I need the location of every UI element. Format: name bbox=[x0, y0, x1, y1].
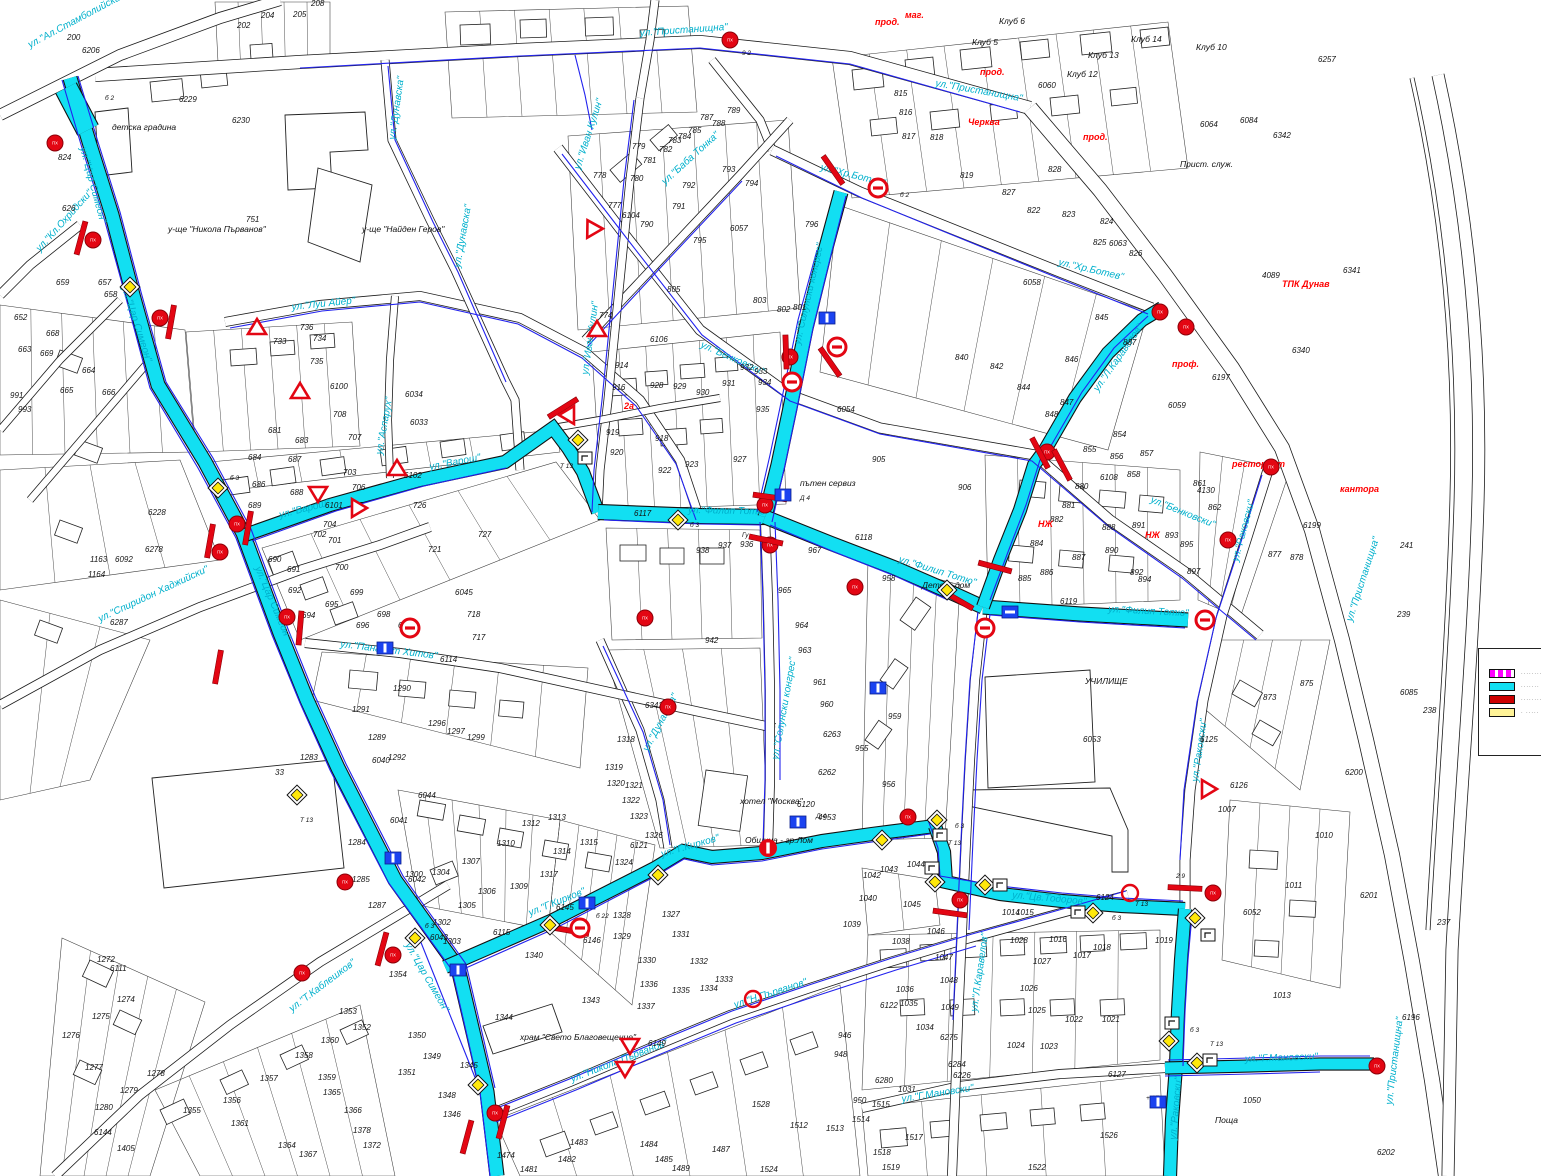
parcel-number: 1361 bbox=[231, 1119, 249, 1128]
parcel-number: 6054 bbox=[837, 405, 855, 414]
parcel-number: 858 bbox=[1127, 470, 1141, 479]
parcel-number: 6340 bbox=[1292, 346, 1310, 355]
parcel-number: 931 bbox=[722, 379, 735, 388]
parcel-number: 1164 bbox=[88, 570, 106, 579]
parcel-number: 848 bbox=[1045, 410, 1059, 419]
network-street bbox=[66, 88, 88, 130]
parcel-number: 1274 bbox=[117, 995, 135, 1004]
parcel-number: 785 bbox=[688, 126, 702, 135]
parcel-number: 1040 bbox=[859, 894, 877, 903]
parcel-number: 1356 bbox=[223, 1096, 241, 1105]
parcel-number: 1027 bbox=[1033, 957, 1051, 966]
parcel-number: 893 bbox=[1165, 531, 1179, 540]
svg-text:ПХ: ПХ bbox=[852, 585, 858, 590]
parcel-number: 932 bbox=[740, 363, 754, 372]
parcel-number: 6044 bbox=[418, 791, 436, 800]
valve-bar-icon bbox=[375, 932, 389, 966]
parcel-number: 1289 bbox=[368, 733, 386, 742]
parcel-number: 6228 bbox=[148, 508, 166, 517]
parcel-number: 1319 bbox=[605, 763, 623, 772]
parcel-line bbox=[507, 476, 550, 540]
place-label: Клуб 6 bbox=[999, 16, 1025, 26]
parcel-number: 1313 bbox=[548, 813, 566, 822]
road-fill bbox=[55, 885, 448, 1176]
parcel-number: 1364 bbox=[278, 1141, 296, 1150]
building bbox=[1080, 1103, 1105, 1121]
building bbox=[1289, 900, 1316, 917]
place-label: Клуб 5 bbox=[972, 37, 998, 47]
parcel-number: 1353 bbox=[339, 1007, 357, 1016]
parcel-number: 934 bbox=[758, 378, 772, 387]
parcel-number: 706 bbox=[352, 483, 366, 492]
building bbox=[590, 1112, 618, 1135]
parcel-number: 6206 bbox=[82, 46, 100, 55]
parcel-number: 202 bbox=[236, 21, 251, 30]
parcel-number: 1292 bbox=[388, 753, 406, 762]
parcel-number: 906 bbox=[958, 483, 972, 492]
parcel-number: 1348 bbox=[438, 1091, 456, 1100]
parcel-block bbox=[0, 600, 150, 800]
parcel-number: 1355 bbox=[183, 1106, 201, 1115]
parcel-line bbox=[458, 491, 500, 560]
parcel-number: 827 bbox=[1002, 188, 1016, 197]
hydrant-icon: ПХ bbox=[1152, 304, 1168, 320]
parcel-number: 1324 bbox=[615, 858, 633, 867]
chamber-icon bbox=[1071, 906, 1085, 918]
parcel-number: 683 bbox=[295, 436, 309, 445]
parcel-number: 1513 bbox=[826, 1124, 844, 1133]
svg-text:ПХ: ПХ bbox=[727, 38, 733, 43]
building bbox=[930, 109, 960, 130]
valve-bar-icon bbox=[296, 611, 304, 645]
parcel-number: 1277 bbox=[85, 1063, 103, 1072]
parcel-number: 1035 bbox=[900, 999, 918, 1008]
parcel-number: 825 bbox=[1093, 238, 1107, 247]
parcel-line bbox=[1275, 640, 1301, 769]
parcel-number: 935 bbox=[756, 405, 770, 414]
parcel-number: 1378 bbox=[353, 1126, 371, 1135]
parcel-number: 946 bbox=[838, 1031, 852, 1040]
no-entry-icon bbox=[976, 619, 994, 637]
valve-bar-icon bbox=[212, 650, 223, 684]
parcel-number: 1517 bbox=[905, 1133, 923, 1142]
note-label: Т 13 bbox=[560, 463, 573, 470]
parcel-number: 699 bbox=[350, 588, 364, 597]
note-label: б 3 bbox=[690, 521, 699, 529]
building bbox=[1110, 87, 1138, 106]
hydrant-icon: ПХ bbox=[229, 516, 245, 532]
building bbox=[230, 348, 257, 366]
parcel-number: 1036 bbox=[896, 985, 914, 994]
parcel-number: 1343 bbox=[582, 996, 600, 1005]
parcel-number: 933 bbox=[754, 367, 768, 376]
parcel-number: 6104 bbox=[622, 211, 640, 220]
parcel-line bbox=[673, 343, 681, 507]
parcel-number: 1317 bbox=[540, 870, 558, 879]
parcel-number: 965 bbox=[778, 586, 792, 595]
building bbox=[55, 520, 83, 543]
parcel-line bbox=[491, 663, 500, 746]
building bbox=[1232, 680, 1263, 707]
legend-label: · ····· bbox=[1521, 710, 1539, 716]
note-label: б 3 bbox=[955, 822, 964, 830]
place-label: Поща bbox=[1215, 1115, 1238, 1125]
place-label: Клуб 13 bbox=[1088, 50, 1119, 60]
parcel-number: 689 bbox=[248, 501, 262, 510]
parcel-number: 888 bbox=[1102, 523, 1116, 532]
place-label: у-ще "Никола Първанов" bbox=[167, 224, 267, 234]
parcel-number: 822 bbox=[1027, 206, 1041, 215]
parcel-number: 796 bbox=[805, 220, 819, 229]
parcel-number: 6196 bbox=[1402, 1013, 1420, 1022]
parcel-number: 1512 bbox=[790, 1121, 808, 1130]
parcel-line bbox=[360, 519, 400, 600]
parcel-number: 1272 bbox=[97, 955, 115, 964]
parcel-number: 669 bbox=[40, 349, 54, 358]
parcel-number: 1278 bbox=[147, 1069, 165, 1078]
hydrant-flag-icon bbox=[450, 964, 466, 976]
parcel-number: 664 bbox=[82, 366, 96, 375]
poi-label: кантора bbox=[1340, 484, 1379, 494]
building-outline bbox=[152, 760, 344, 888]
building bbox=[618, 418, 643, 436]
building bbox=[520, 19, 547, 38]
parcel-number: 862 bbox=[1208, 503, 1222, 512]
parcel-line bbox=[93, 318, 98, 454]
parcel-line bbox=[868, 223, 890, 385]
parcel-number: 1310 bbox=[497, 839, 515, 848]
parcel-number: 1017 bbox=[1073, 951, 1091, 960]
parcel-line bbox=[725, 1030, 747, 1176]
parcel-number: 665 bbox=[60, 386, 74, 395]
parcel-number: 681 bbox=[268, 426, 281, 435]
hydrant-flag-icon bbox=[819, 312, 835, 324]
parcel-number: 895 bbox=[1180, 540, 1194, 549]
parcel-line bbox=[753, 335, 760, 505]
road-casing bbox=[55, 885, 448, 1176]
street-label: ул."Пристанищна" bbox=[1344, 535, 1382, 624]
parcel-number: 6045 bbox=[455, 588, 473, 597]
note-label: б 3 bbox=[230, 474, 239, 482]
parcel-number: 1330 bbox=[638, 956, 656, 965]
hydrant-icon: ПХ bbox=[900, 809, 916, 825]
parcel-number: 818 bbox=[930, 133, 944, 142]
parcel-number: 1045 bbox=[903, 900, 921, 909]
road-fill bbox=[30, 360, 150, 500]
note-label: 2 9 bbox=[1175, 873, 1185, 880]
parcel-number: 200 bbox=[66, 33, 81, 42]
warning-triangle-icon bbox=[580, 216, 603, 238]
hydrant-flag-icon bbox=[870, 682, 886, 694]
svg-text:ПХ: ПХ bbox=[642, 616, 648, 621]
parcel-number: 1346 bbox=[443, 1110, 461, 1119]
chamber-icon bbox=[1165, 1017, 1179, 1029]
no-entry-icon bbox=[828, 338, 846, 356]
parcel-number: 657 bbox=[98, 278, 112, 287]
parcel-number: 789 bbox=[727, 106, 741, 115]
parcel-number: 6126 bbox=[1230, 781, 1248, 790]
parcel-number: 6064 bbox=[1200, 120, 1218, 129]
legend-note: · · bbox=[1489, 657, 1541, 663]
parcel-number: 659 bbox=[56, 278, 70, 287]
poi-label: 2а bbox=[623, 401, 634, 411]
legend-swatch bbox=[1489, 669, 1515, 678]
parcel-number: 1306 bbox=[478, 887, 496, 896]
parcel-number: 823 bbox=[1062, 210, 1076, 219]
building bbox=[460, 24, 491, 45]
parcel-line bbox=[964, 259, 993, 412]
parcel-line bbox=[916, 241, 941, 398]
parcel-number: 779 bbox=[632, 142, 646, 151]
parcel-number: 885 bbox=[1018, 574, 1032, 583]
parcel-number: 701 bbox=[328, 536, 341, 545]
parcel-number: 1290 bbox=[393, 684, 411, 693]
hydrant-icon: ПХ bbox=[952, 892, 968, 908]
parcel-number: 1484 bbox=[640, 1140, 658, 1149]
svg-text:ПХ: ПХ bbox=[1183, 325, 1189, 330]
parcel-line bbox=[1032, 932, 1035, 1073]
chamber-icon bbox=[1203, 1054, 1217, 1066]
no-entry-icon bbox=[401, 619, 419, 637]
parcel-number: 1357 bbox=[260, 1074, 278, 1083]
network-street bbox=[765, 192, 841, 517]
parcel-number: 1303 bbox=[443, 937, 461, 946]
parcel-number: 803 bbox=[753, 296, 767, 305]
parcel-number: 819 bbox=[960, 171, 974, 180]
parcel-number: 1023 bbox=[1040, 1042, 1058, 1051]
parcel-number: 1514 bbox=[852, 1115, 870, 1124]
parcel-number: 6119 bbox=[1060, 597, 1078, 606]
parcel-number: 948 bbox=[834, 1050, 848, 1059]
street-label: ул."Ал.Стамболийски" bbox=[25, 0, 126, 51]
parcel-number: 938 bbox=[696, 546, 710, 555]
hydrant-icon: ПХ bbox=[279, 609, 295, 625]
building bbox=[980, 1113, 1007, 1131]
parcel-number: 736 bbox=[300, 323, 314, 332]
parcel-number: 698 bbox=[377, 610, 391, 619]
parcel-number: 824 bbox=[1100, 217, 1114, 226]
svg-text:ПХ: ПХ bbox=[342, 880, 348, 885]
parcel-number: 781 bbox=[643, 156, 656, 165]
parcel-number: 1304 bbox=[432, 868, 450, 877]
parcel-number: 1489 bbox=[672, 1164, 690, 1173]
street-label: ул."Пристанищна" bbox=[1384, 1016, 1406, 1106]
parcel-number: 6117 bbox=[634, 509, 652, 518]
building bbox=[690, 1072, 718, 1095]
place-label: Клуб 10 bbox=[1196, 42, 1227, 52]
parcel-number: 991 bbox=[10, 391, 23, 400]
hydrant-icon: ПХ bbox=[722, 32, 738, 48]
building bbox=[1249, 850, 1278, 869]
note-label: б 22 bbox=[596, 912, 609, 920]
parcel-number: 1367 bbox=[299, 1150, 317, 1159]
building bbox=[900, 597, 931, 630]
parcel-number: 837 bbox=[1123, 338, 1137, 347]
building bbox=[1030, 1108, 1055, 1126]
parcel-line bbox=[30, 613, 50, 793]
parcel-number: 950 bbox=[853, 1096, 867, 1105]
svg-text:ПХ: ПХ bbox=[90, 238, 96, 243]
parcel-number: 208 bbox=[310, 0, 325, 8]
warning-triangle-icon bbox=[291, 383, 309, 398]
note-label: Д 4 bbox=[799, 495, 810, 502]
parcel-number: 703 bbox=[343, 468, 357, 477]
parcel-number: 1016 bbox=[1049, 935, 1067, 944]
hydrant-icon: ПХ bbox=[47, 135, 63, 151]
parcel-number: 690 bbox=[268, 555, 282, 564]
svg-text:ПХ: ПХ bbox=[665, 705, 671, 710]
parcel-number: 890 bbox=[1105, 546, 1119, 555]
parcel-number: 1302 bbox=[433, 918, 451, 927]
parcel-number: 780 bbox=[630, 174, 644, 183]
parcel-number: 1481 bbox=[520, 1165, 538, 1174]
no-entry-icon bbox=[571, 919, 589, 937]
hydrant-flag-icon bbox=[1002, 606, 1018, 618]
note-label: Гу bbox=[742, 532, 749, 539]
parcel-number: 4089 bbox=[1262, 271, 1280, 280]
parcel-number: 6034 bbox=[405, 390, 423, 399]
building bbox=[300, 577, 328, 600]
building bbox=[740, 1052, 768, 1075]
parcel-number: 1327 bbox=[662, 910, 680, 919]
parcel-number: 1528 bbox=[752, 1100, 770, 1109]
building bbox=[457, 815, 485, 835]
parcel-number: 1028 bbox=[1010, 936, 1028, 945]
building bbox=[82, 960, 113, 987]
parcel-number: 707 bbox=[348, 433, 362, 442]
chamber-icon bbox=[578, 452, 592, 464]
hydrant-flag-icon bbox=[790, 816, 806, 828]
parcel-number: 923 bbox=[685, 460, 699, 469]
parcel-number: 6127 bbox=[1108, 1070, 1126, 1079]
parcel-number: 239 bbox=[1396, 610, 1411, 619]
parcel-number: 6278 bbox=[145, 545, 163, 554]
parcel-number: 668 bbox=[46, 329, 60, 338]
building bbox=[585, 852, 611, 872]
legend-label: ········ bbox=[1521, 697, 1541, 703]
parcel-number: 881 bbox=[1062, 501, 1075, 510]
parcel-line bbox=[725, 125, 736, 315]
building bbox=[1120, 933, 1147, 950]
place-label: пътен сервиз bbox=[800, 478, 856, 488]
parcel-number: 1291 bbox=[352, 705, 370, 714]
parcel-number: 658 bbox=[104, 290, 118, 299]
parcel-number: 1297 bbox=[447, 727, 465, 736]
parcel-number: 33 bbox=[275, 768, 284, 777]
parcel-number: 1312 bbox=[522, 819, 540, 828]
parcel-number: 6058 bbox=[1023, 278, 1041, 287]
note-label: Т 13 bbox=[1210, 1041, 1223, 1048]
parcel-number: 1515 bbox=[872, 1100, 890, 1109]
poi-label: прод. bbox=[980, 67, 1005, 77]
building bbox=[585, 17, 614, 36]
parcel-number: 6262 bbox=[818, 768, 836, 777]
parcel-number: 817 bbox=[902, 132, 916, 141]
svg-text:ПХ: ПХ bbox=[1210, 891, 1216, 896]
parcel-line bbox=[1012, 276, 1045, 424]
place-label: Клуб 14 bbox=[1131, 34, 1162, 44]
parcel-number: 626 bbox=[62, 204, 76, 213]
parcel-number: 1011 bbox=[1285, 881, 1302, 890]
parcel-number: 704 bbox=[323, 520, 337, 529]
parcel-number: 717 bbox=[472, 633, 486, 642]
svg-text:ПХ: ПХ bbox=[299, 971, 305, 976]
valve-bar-icon bbox=[460, 1120, 474, 1154]
road-fill bbox=[712, 60, 772, 150]
svg-text:ПХ: ПХ bbox=[52, 141, 58, 146]
parcel-number: 1299 bbox=[467, 733, 485, 742]
parcel-line bbox=[1281, 806, 1290, 974]
poi-label: маг. bbox=[905, 10, 924, 20]
parcel-number: 937 bbox=[718, 541, 732, 550]
legend-swatch bbox=[1489, 682, 1515, 691]
parcel-number: 930 bbox=[696, 388, 710, 397]
parcel-number: 6092 bbox=[115, 555, 133, 564]
parcel-number: 1333 bbox=[715, 975, 733, 984]
svg-text:ПХ: ПХ bbox=[762, 503, 768, 508]
building bbox=[1000, 999, 1025, 1016]
parcel-number: 6106 bbox=[650, 335, 668, 344]
building-outline bbox=[483, 1004, 562, 1054]
parcel-number: 794 bbox=[745, 179, 759, 188]
parcel-number: 718 bbox=[467, 610, 481, 619]
svg-text:ПХ: ПХ bbox=[234, 522, 240, 527]
parcel-number: 1024 bbox=[1007, 1041, 1025, 1050]
svg-text:ПХ: ПХ bbox=[217, 550, 223, 555]
parcel-line bbox=[990, 933, 993, 1077]
parcel-number: 691 bbox=[287, 565, 300, 574]
parcel-number: 751 bbox=[246, 215, 259, 224]
svg-text:ПХ: ПХ bbox=[1157, 310, 1163, 315]
building bbox=[880, 1128, 907, 1148]
hydrant-icon: ПХ bbox=[1263, 459, 1279, 475]
parcel-number: 1022 bbox=[1065, 1015, 1083, 1024]
parcel-number: 6125 bbox=[1200, 735, 1218, 744]
place-label: у-ще "Найден Геров" bbox=[361, 224, 445, 234]
parcel-number: 6202 bbox=[1377, 1148, 1395, 1157]
parcel-number: 961 bbox=[813, 678, 826, 687]
parcel-number: 1522 bbox=[1028, 1163, 1046, 1172]
parcel-number: 846 bbox=[1065, 355, 1079, 364]
parcel-line bbox=[284, 2, 285, 60]
parcel-number: 1284 bbox=[348, 838, 366, 847]
parcel-number: 955 bbox=[855, 744, 869, 753]
building-outline bbox=[965, 788, 1128, 872]
parcel-number: 1031 bbox=[898, 1085, 916, 1094]
parcel-number: 6287 bbox=[110, 618, 128, 627]
parcel-number: 6100 bbox=[330, 382, 348, 391]
parcel-number: 6101 bbox=[325, 501, 343, 510]
hydrant-flag-icon bbox=[377, 642, 393, 654]
parcel-number: 1307 bbox=[462, 857, 480, 866]
hydrant-icon: ПХ bbox=[1369, 1058, 1385, 1074]
building bbox=[620, 545, 646, 561]
parcel-number: 1345 bbox=[460, 1061, 478, 1070]
parcel-number: 1329 bbox=[613, 932, 631, 941]
parcel-line bbox=[1117, 931, 1118, 1065]
parcel-number: 959 bbox=[888, 712, 902, 721]
parcel-number: 778 bbox=[593, 171, 607, 180]
chamber-icon bbox=[1201, 929, 1215, 941]
parcel-number: 856 bbox=[1110, 452, 1124, 461]
parcel-number: 788 bbox=[712, 119, 726, 128]
building bbox=[417, 800, 445, 820]
building-outline bbox=[308, 168, 372, 262]
parcel-line bbox=[549, 9, 557, 115]
parcel-number: 6199 bbox=[1303, 521, 1321, 530]
note-label: б 3 bbox=[1112, 914, 1121, 922]
parcel-number: 1285 bbox=[352, 875, 370, 884]
